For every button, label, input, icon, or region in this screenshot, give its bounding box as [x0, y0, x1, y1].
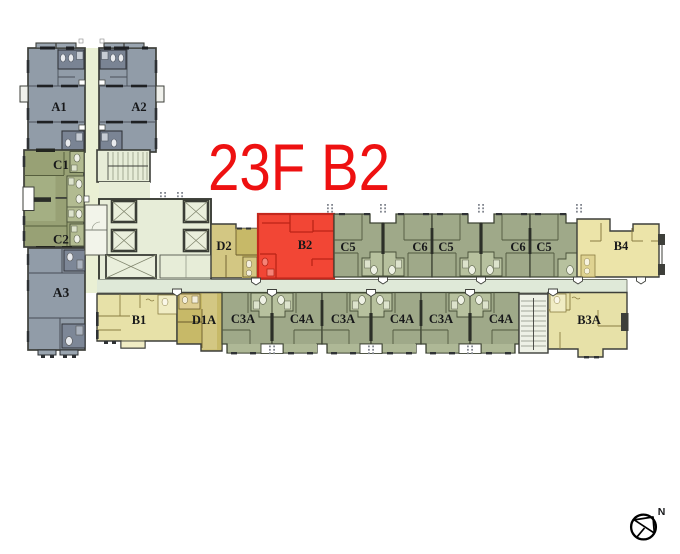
svg-text:N: N	[658, 506, 666, 518]
svg-text:C4A: C4A	[390, 312, 414, 326]
svg-text:C4A: C4A	[489, 312, 513, 326]
svg-text:B1: B1	[132, 313, 147, 327]
svg-text:A1: A1	[51, 100, 66, 114]
svg-text:C6: C6	[510, 240, 525, 254]
svg-text:B2: B2	[298, 238, 313, 252]
svg-text:B4: B4	[614, 239, 629, 253]
svg-text:C5: C5	[438, 240, 453, 254]
svg-text:D1A: D1A	[192, 313, 216, 327]
svg-text:A2: A2	[131, 100, 146, 114]
svg-text:B3A: B3A	[577, 313, 601, 327]
svg-text:D2: D2	[216, 239, 231, 253]
svg-text:C5: C5	[536, 240, 551, 254]
svg-text:C3A: C3A	[429, 312, 453, 326]
svg-text:C4A: C4A	[290, 312, 314, 326]
svg-text:A3: A3	[53, 285, 70, 300]
svg-text:C1: C1	[53, 157, 69, 172]
svg-text:23F B2: 23F B2	[208, 130, 390, 204]
svg-text:C5: C5	[340, 240, 355, 254]
svg-text:C2: C2	[53, 232, 69, 247]
svg-text:C3A: C3A	[331, 312, 355, 326]
svg-text:C3A: C3A	[231, 312, 255, 326]
svg-text:C6: C6	[412, 240, 427, 254]
